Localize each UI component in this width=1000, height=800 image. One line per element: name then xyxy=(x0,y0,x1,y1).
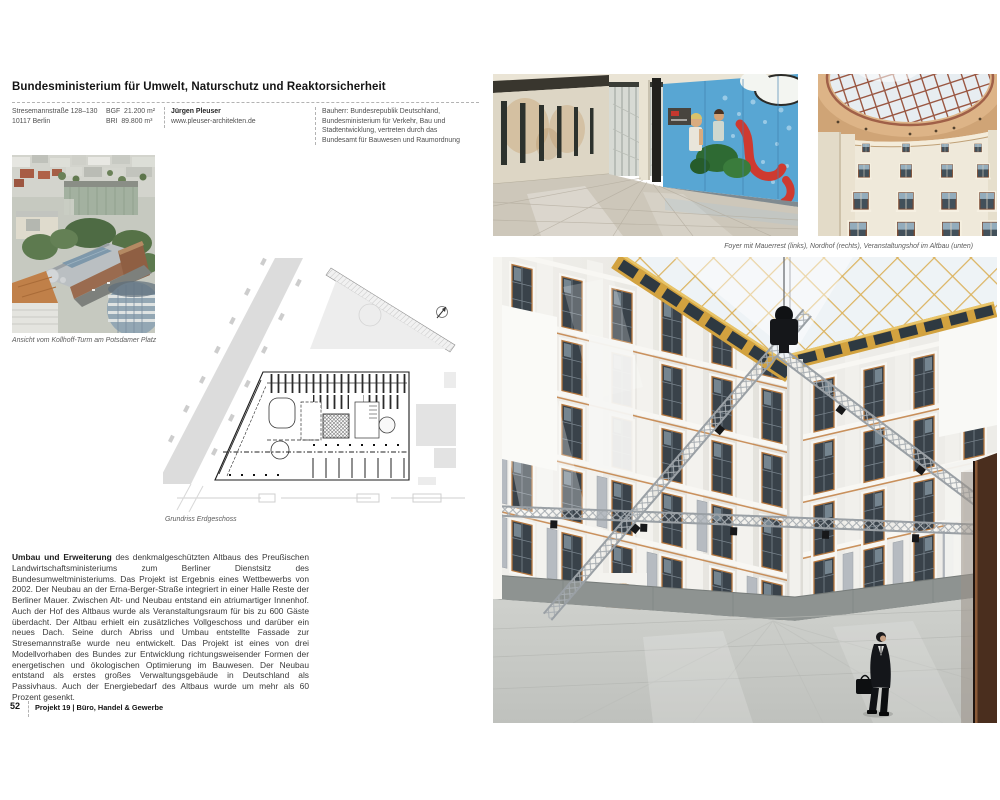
aerial-view-photo xyxy=(12,155,155,333)
veranstaltungshof-photo xyxy=(493,257,997,723)
round-glass-tower xyxy=(107,281,155,333)
info-divider-2 xyxy=(315,107,316,145)
metric1-value: 21.200 m² xyxy=(124,108,155,115)
footer-divider xyxy=(28,701,29,717)
page-title: Bundesministerium für Umwelt, Naturschut… xyxy=(12,81,482,93)
acoustic-panel xyxy=(493,303,557,471)
courtyard xyxy=(269,398,295,428)
pilaster xyxy=(818,132,840,236)
photos-caption: Foyer mit Mauerrest (links), Nordhof (re… xyxy=(553,243,973,252)
address-line1: Stresemannstraße 128–130 xyxy=(12,107,106,117)
architect-url: www.pleuser-architekten.de xyxy=(171,117,311,127)
plan-caption: Grundriss Erdgeschoss xyxy=(165,516,365,525)
metric2-value: 89.800 m³ xyxy=(121,118,152,125)
dark-wood-column xyxy=(975,453,997,723)
client-info: Bauherr: Bundesrepublik Deutschland, Bun… xyxy=(322,107,482,145)
book-page: Bundesministerium für Umwelt, Naturschut… xyxy=(0,0,1000,800)
client-line: Bauherr: Bundesrepublik Deutschland, xyxy=(322,107,482,117)
round-room xyxy=(271,441,289,459)
client-line: Bundesamt für Bauwesen und Raumordnung xyxy=(322,136,482,146)
black-pillar xyxy=(652,78,661,182)
foyer-mauerrest-photo xyxy=(493,74,798,236)
green-mesh-building xyxy=(64,181,138,215)
project-address: Stresemannstraße 128–130 10117 Berlin xyxy=(12,107,106,126)
floor-plan xyxy=(163,252,490,514)
header-rule xyxy=(12,102,479,103)
central-hall xyxy=(323,414,349,438)
page-number: 52 xyxy=(10,701,20,711)
architect-name: Jürgen Pleuser xyxy=(171,107,311,117)
address-line2: 10117 Berlin xyxy=(12,117,106,127)
nordhof-photo xyxy=(818,74,997,236)
metric1-label: BGF xyxy=(106,108,120,115)
body-paragraph: Umbau und Erweiterung des denkmalgeschüt… xyxy=(12,552,309,703)
white-building xyxy=(12,303,58,333)
metric2-label: BRI xyxy=(106,118,118,125)
info-divider-1 xyxy=(164,107,165,128)
client-line: Bundesministerium für Verkehr, Bau und xyxy=(322,117,482,127)
client-line: Stadtentwicklung, vertreten durch das xyxy=(322,126,482,136)
section-title: Projekt 19 | Büro, Handel & Gewerbe xyxy=(35,703,163,712)
park-triangle xyxy=(310,281,446,349)
neighbor-block xyxy=(416,404,456,446)
project-metrics: BGF 21.200 m² BRI 89.800 m³ xyxy=(106,107,162,126)
architect-info: Jürgen Pleuser www.pleuser-architekten.d… xyxy=(171,107,311,126)
north-arrow-icon xyxy=(437,307,448,319)
body-copy: des denkmalgeschützten Altbaus des Preuß… xyxy=(12,552,309,702)
body-lead: Umbau und Erweiterung xyxy=(12,552,112,562)
